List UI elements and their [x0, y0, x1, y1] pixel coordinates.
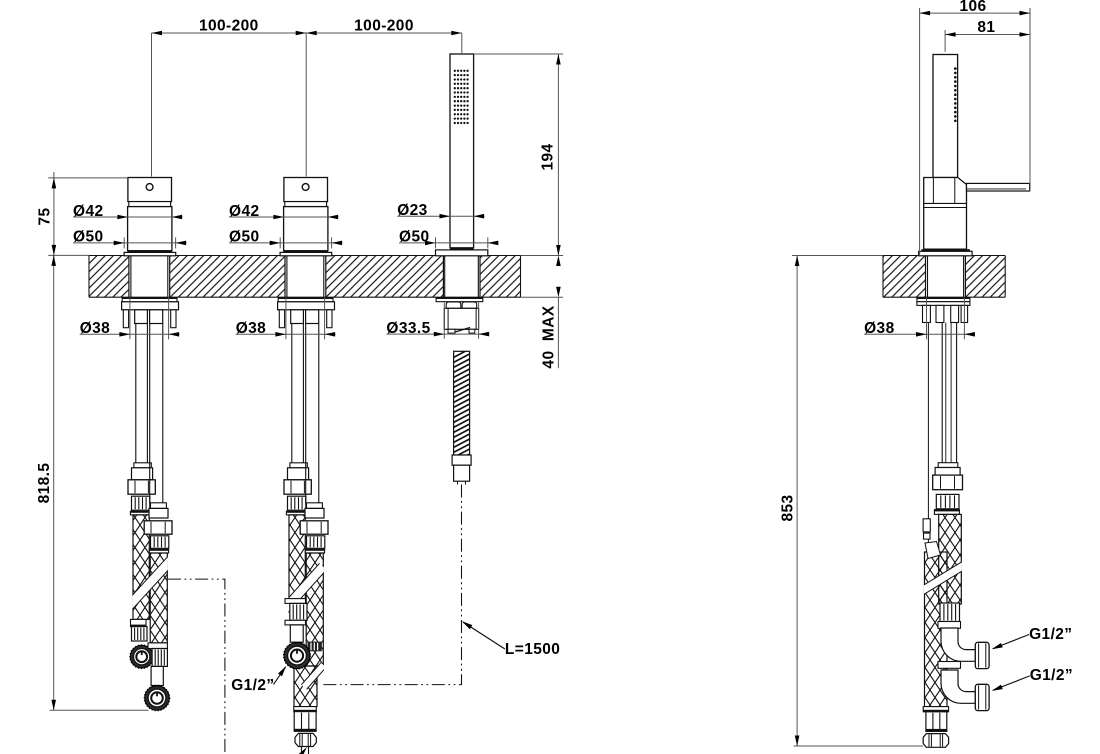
svg-text:81: 81 [977, 19, 995, 36]
svg-text:L=1500: L=1500 [505, 641, 560, 658]
svg-text:G1/2”: G1/2” [231, 677, 274, 694]
svg-text:G1/2”: G1/2” [1029, 626, 1072, 643]
svg-text:853: 853 [780, 494, 797, 521]
svg-text:75: 75 [37, 207, 54, 225]
svg-text:G1/2”: G1/2” [1030, 667, 1073, 684]
svg-text:194: 194 [540, 143, 557, 170]
svg-text:100-200: 100-200 [354, 18, 414, 35]
svg-text:106: 106 [959, 0, 986, 15]
svg-text:100-200: 100-200 [199, 18, 259, 35]
svg-text:40 MAX: 40 MAX [541, 305, 558, 368]
svg-text:818.5: 818.5 [36, 463, 53, 504]
